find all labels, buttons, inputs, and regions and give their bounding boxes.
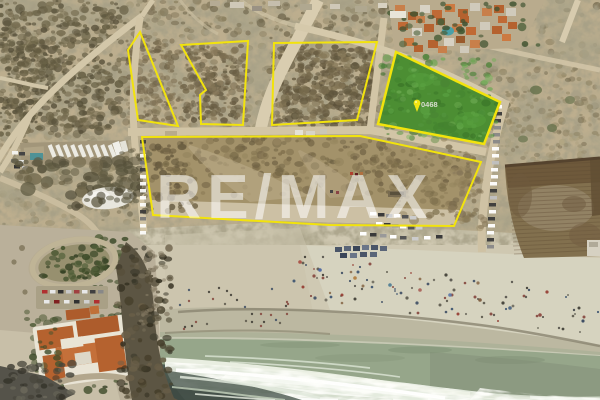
svg-text:RE/MAX: RE/MAX: [156, 163, 433, 232]
svg-text:0468: 0468: [421, 100, 438, 109]
